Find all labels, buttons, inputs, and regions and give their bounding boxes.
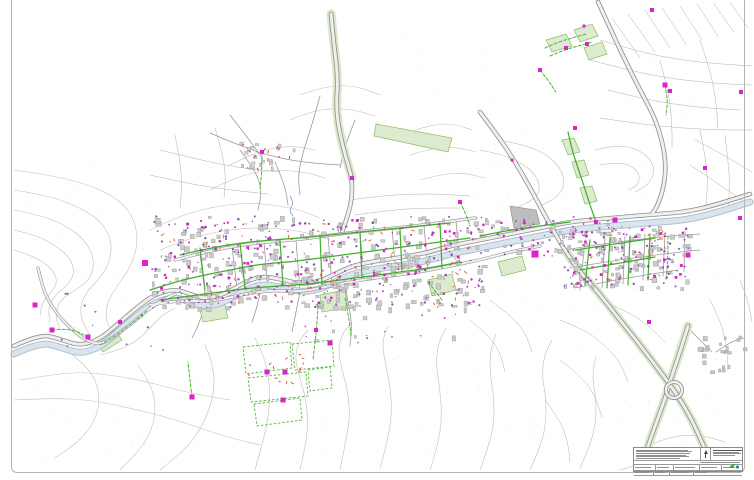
title-block-field — [670, 471, 694, 476]
sheet — [0, 0, 754, 480]
parking-area — [510, 206, 540, 228]
terrain-speckle — [21, 161, 735, 460]
title-block — [633, 447, 743, 472]
buildings-right-town — [562, 226, 692, 291]
text-line — [671, 472, 689, 473]
green-dashed-parcels — [243, 340, 334, 426]
title-block-company — [711, 448, 742, 460]
contour-lines — [14, 86, 654, 470]
text-line — [701, 467, 717, 468]
title-block-field — [634, 471, 654, 476]
text-line — [695, 472, 707, 473]
text-line — [655, 472, 665, 473]
title-block-fields-row-2 — [634, 471, 742, 477]
buildings-ne-hamlet — [698, 336, 747, 374]
stream-scribble — [290, 196, 293, 216]
text-line — [635, 467, 651, 468]
text-line — [675, 467, 695, 468]
text-line — [713, 455, 735, 456]
title-block-header — [634, 448, 742, 461]
text-line — [636, 458, 680, 459]
north-arrow-icon — [701, 448, 711, 460]
text-line — [657, 467, 669, 468]
map-canvas — [0, 0, 754, 480]
title-block-field — [634, 465, 656, 470]
title-block-field — [700, 465, 722, 470]
title-block-field — [674, 465, 700, 470]
company-logo-icon — [727, 462, 741, 470]
title-block-field — [694, 471, 711, 476]
title-block-field — [654, 471, 670, 476]
water-net-dashed — [52, 34, 668, 397]
title-block-field — [656, 465, 674, 470]
title-block-notes — [634, 448, 701, 460]
text-line — [635, 472, 649, 473]
